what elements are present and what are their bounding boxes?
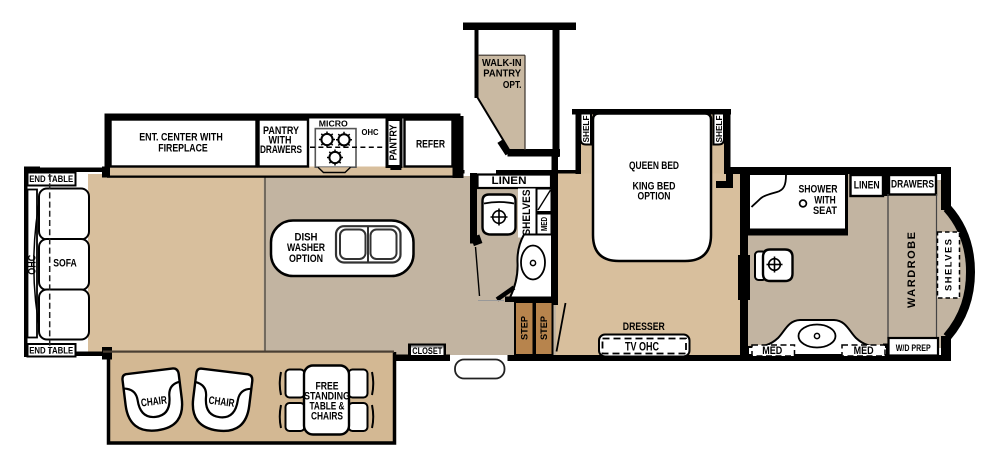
svg-text:DRAWERS: DRAWERS [891,179,934,191]
svg-text:TV OHC: TV OHC [625,339,659,353]
svg-text:REFER: REFER [416,139,445,151]
svg-text:SHELVES: SHELVES [521,190,533,236]
svg-text:STEP: STEP [539,316,549,340]
svg-text:PANTRY: PANTRY [483,69,521,80]
svg-text:OHC: OHC [362,127,379,137]
svg-text:SOFA: SOFA [53,258,77,270]
svg-text:OPTION: OPTION [638,191,671,203]
svg-text:SHELF: SHELF [714,116,724,143]
svg-text:OPTION: OPTION [289,253,323,265]
svg-text:MED: MED [762,345,782,357]
svg-text:OHC: OHC [27,255,39,275]
svg-text:SEAT: SEAT [813,205,837,217]
svg-text:LINEN: LINEN [492,175,527,187]
svg-text:MED: MED [539,217,549,231]
svg-text:SHELVES: SHELVES [944,239,954,291]
svg-text:SHELF: SHELF [581,116,591,143]
svg-text:DRESSER: DRESSER [623,321,665,333]
svg-text:CHAIRS: CHAIRS [311,411,343,423]
svg-text:OPT.: OPT. [503,80,522,91]
svg-text:FIREPLACE: FIREPLACE [158,143,208,155]
svg-text:MED: MED [854,345,874,357]
svg-text:END TABLE: END TABLE [29,174,73,184]
svg-text:DRAWERS: DRAWERS [260,144,302,156]
svg-text:W/D PREP: W/D PREP [896,343,931,353]
svg-text:STEP: STEP [520,316,530,340]
svg-text:MICRO: MICRO [319,118,348,128]
svg-text:END TABLE: END TABLE [29,345,73,355]
svg-text:PANTRY: PANTRY [389,124,400,160]
svg-text:QUEEN BED: QUEEN BED [629,160,679,172]
svg-text:SHOWER: SHOWER [799,183,838,195]
svg-text:WALK-IN: WALK-IN [482,58,522,69]
svg-text:WARDROBE: WARDROBE [906,232,918,308]
svg-text:LINEN: LINEN [854,180,880,192]
svg-text:CLOSET: CLOSET [412,346,442,356]
